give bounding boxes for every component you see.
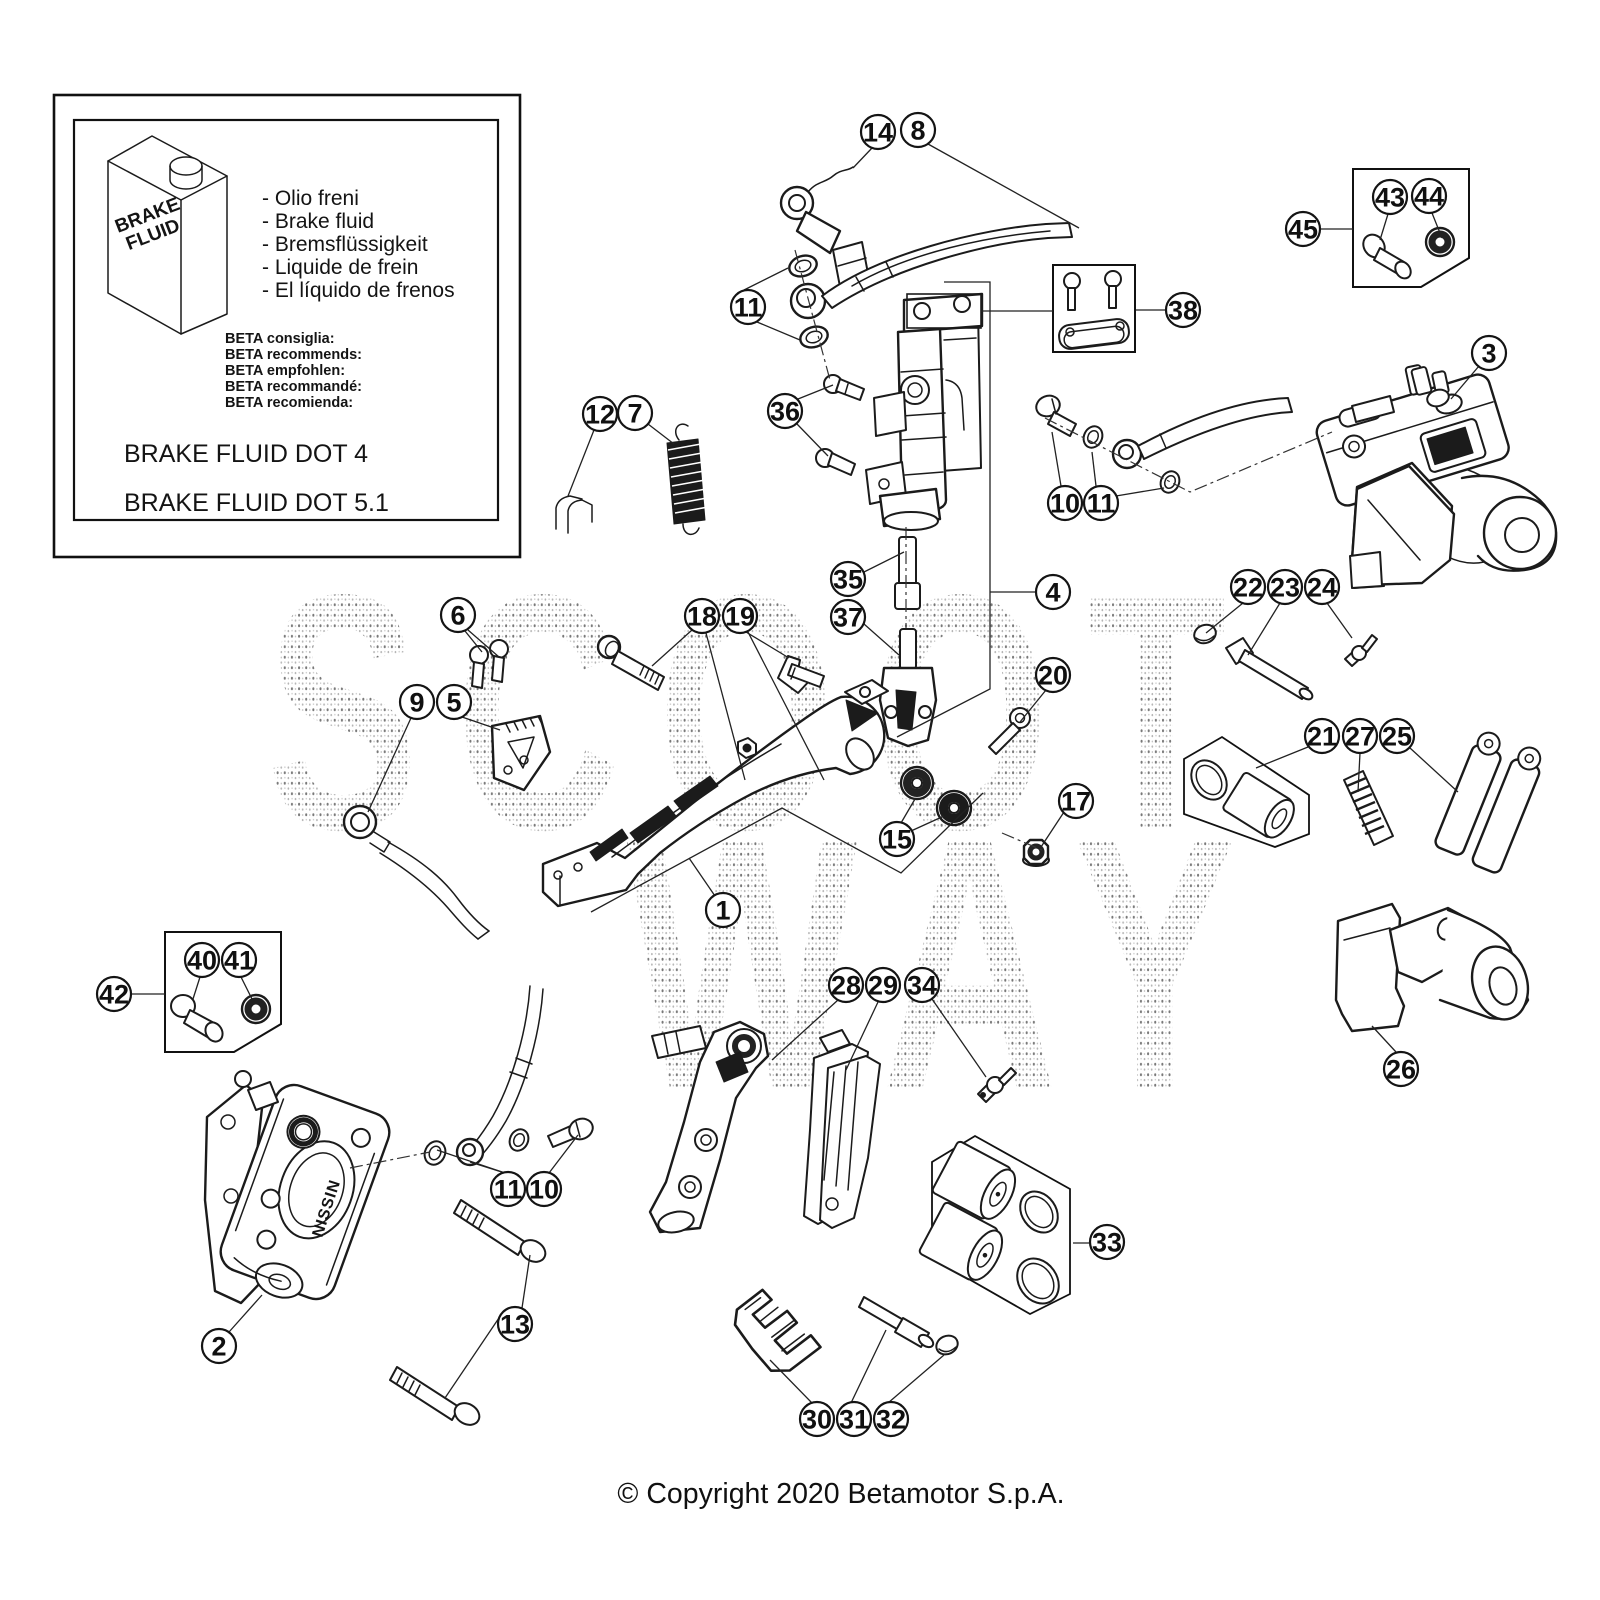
svg-text:6: 6: [450, 601, 465, 631]
svg-text:BETA consiglia:: BETA consiglia:: [225, 331, 335, 347]
svg-text:21: 21: [1307, 722, 1337, 752]
svg-text:23: 23: [1270, 573, 1300, 603]
svg-text:34: 34: [907, 971, 937, 1001]
svg-text:- Olio freni: - Olio freni: [262, 187, 359, 210]
svg-text:BETA recommandé:: BETA recommandé:: [225, 379, 362, 395]
svg-text:36: 36: [770, 397, 800, 427]
svg-text:- Brake fluid: - Brake fluid: [262, 210, 374, 233]
svg-text:43: 43: [1375, 183, 1405, 213]
svg-text:5: 5: [446, 688, 461, 718]
svg-text:22: 22: [1233, 573, 1263, 603]
svg-text:9: 9: [409, 688, 424, 718]
svg-text:BETA recommends:: BETA recommends:: [225, 347, 362, 363]
svg-text:26: 26: [1386, 1055, 1416, 1085]
svg-text:28: 28: [831, 971, 861, 1001]
svg-text:11: 11: [734, 293, 763, 323]
svg-text:- El líquido de frenos: - El líquido de frenos: [262, 279, 455, 302]
svg-text:4: 4: [1045, 578, 1060, 608]
svg-text:27: 27: [1345, 722, 1375, 752]
svg-text:- Liquide de frein: - Liquide de frein: [262, 256, 418, 279]
svg-text:17: 17: [1061, 787, 1091, 817]
svg-text:35: 35: [833, 565, 863, 595]
svg-text:BRAKE FLUID DOT 4: BRAKE FLUID DOT 4: [124, 440, 368, 468]
svg-text:2: 2: [211, 1332, 226, 1362]
svg-text:11: 11: [494, 1175, 523, 1205]
svg-text:© Copyright 2020 Betamotor S.p: © Copyright 2020 Betamotor S.p.A.: [617, 1478, 1064, 1510]
svg-text:18: 18: [687, 602, 717, 632]
svg-text:25: 25: [1382, 722, 1412, 752]
svg-text:13: 13: [500, 1310, 530, 1340]
svg-text:38: 38: [1168, 296, 1198, 326]
svg-text:1: 1: [715, 896, 730, 926]
svg-text:41: 41: [224, 946, 254, 976]
svg-text:42: 42: [99, 980, 129, 1010]
svg-text:40: 40: [187, 946, 217, 976]
svg-text:12: 12: [585, 400, 615, 430]
svg-text:37: 37: [833, 603, 863, 633]
svg-text:11: 11: [1087, 489, 1116, 519]
svg-text:10: 10: [529, 1175, 559, 1205]
svg-text:24: 24: [1307, 573, 1337, 603]
svg-text:7: 7: [627, 399, 642, 429]
svg-text:32: 32: [876, 1405, 906, 1435]
svg-text:29: 29: [868, 971, 898, 1001]
svg-text:30: 30: [802, 1405, 832, 1435]
svg-text:BETA empfohlen:: BETA empfohlen:: [225, 363, 345, 379]
svg-text:31: 31: [839, 1405, 869, 1435]
svg-text:20: 20: [1038, 661, 1068, 691]
svg-text:10: 10: [1050, 489, 1080, 519]
svg-text:8: 8: [910, 116, 925, 146]
svg-text:33: 33: [1092, 1228, 1122, 1258]
svg-text:- Bremsflüssigkeit: - Bremsflüssigkeit: [262, 233, 428, 256]
svg-text:14: 14: [863, 118, 893, 148]
svg-text:BETA recomienda:: BETA recomienda:: [225, 395, 353, 411]
svg-text:19: 19: [725, 602, 755, 632]
svg-text:3: 3: [1481, 339, 1496, 369]
svg-text:45: 45: [1288, 215, 1318, 245]
svg-text:15: 15: [882, 825, 912, 855]
svg-text:44: 44: [1414, 182, 1444, 212]
svg-text:BRAKE FLUID DOT 5.1: BRAKE FLUID DOT 5.1: [124, 489, 389, 517]
